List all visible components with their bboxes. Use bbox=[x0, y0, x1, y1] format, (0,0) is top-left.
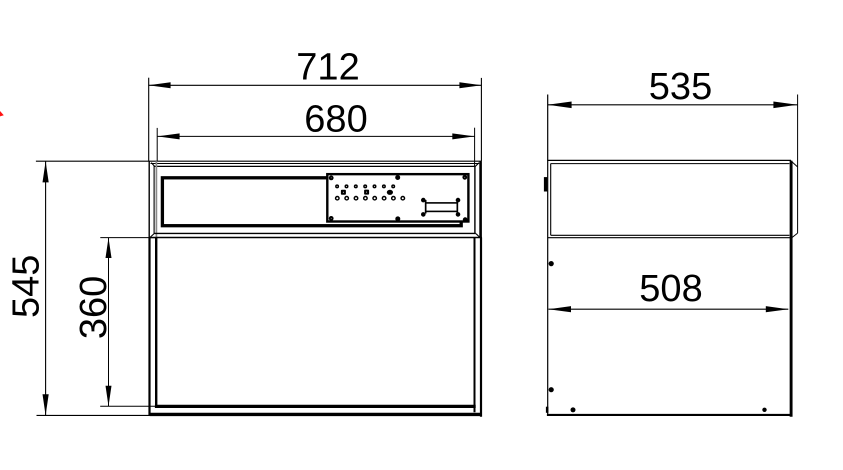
svg-text:535: 535 bbox=[649, 66, 712, 108]
svg-text:545: 545 bbox=[6, 255, 48, 318]
svg-text:508: 508 bbox=[639, 268, 702, 310]
svg-text:680: 680 bbox=[304, 98, 367, 140]
svg-text:712: 712 bbox=[296, 47, 359, 89]
